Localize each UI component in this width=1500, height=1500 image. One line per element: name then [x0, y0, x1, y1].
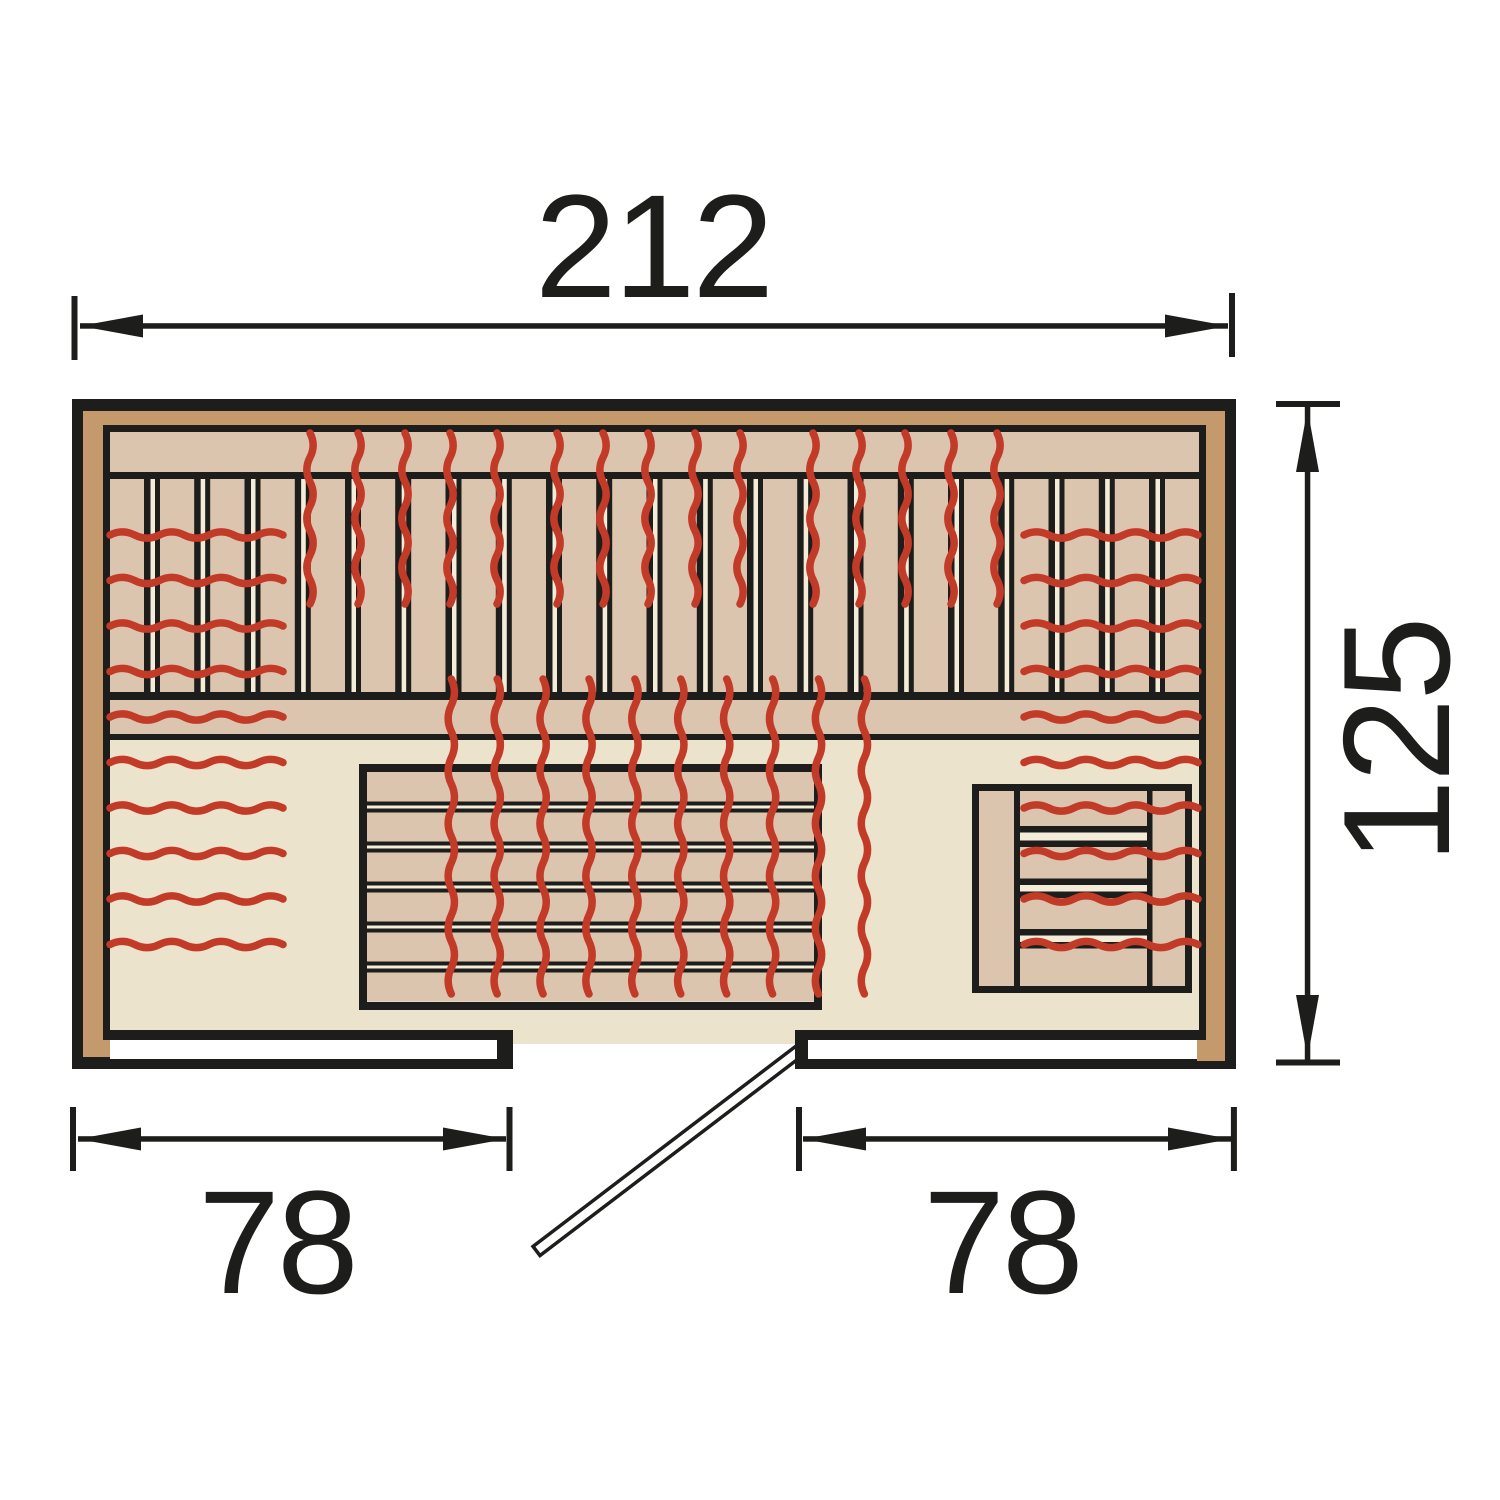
svg-text:78: 78: [198, 1161, 356, 1325]
svg-text:78: 78: [923, 1161, 1081, 1325]
svg-text:125: 125: [1312, 619, 1482, 864]
svg-text:212: 212: [535, 165, 771, 329]
